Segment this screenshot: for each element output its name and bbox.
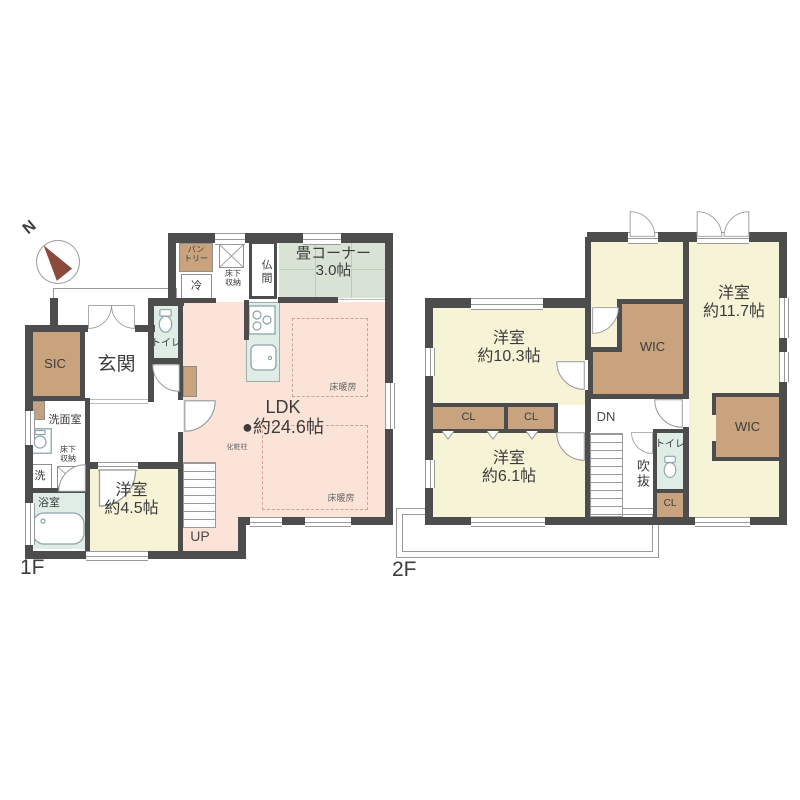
window: [25, 411, 35, 445]
toilet-1f-label: トイレ: [151, 338, 179, 349]
bedroom-61-size: 約6.1帖: [433, 468, 585, 486]
bedroom-117-door-arc: [654, 399, 683, 428]
genkan-label: 玄関: [85, 354, 148, 375]
wall: [433, 403, 557, 407]
wall: [617, 299, 685, 304]
room-wic-left-ext: [593, 352, 622, 394]
stove-icon: [248, 305, 276, 335]
wall: [712, 393, 782, 397]
bedroom-45-name: 洋室: [85, 482, 178, 500]
window-swing-arc: [723, 211, 750, 237]
window: [471, 298, 543, 310]
cl-a-label: CL: [433, 411, 504, 423]
cupboard-strip: [183, 366, 197, 397]
wall: [178, 432, 183, 559]
pillar-label: 化粧柱: [222, 444, 252, 452]
pantry-label: パン トリー: [179, 246, 213, 264]
window: [471, 517, 545, 527]
bedroom-61-name: 洋室: [433, 450, 585, 468]
wall: [712, 393, 716, 415]
kitchen-sink-icon: [250, 344, 277, 371]
washroom-label: 洗面室: [43, 414, 87, 426]
underfloor-storage-label: 床下 収納: [217, 270, 249, 288]
bedroom-61-label: 洋室 約6.1帖: [433, 450, 585, 486]
genkan-step-line: [85, 399, 148, 400]
wall: [278, 297, 338, 303]
void-label: 吹抜: [627, 448, 649, 500]
wall: [585, 237, 591, 303]
staircase-2f: [590, 433, 623, 517]
window: [215, 233, 245, 245]
stairs-down-label: DN: [588, 410, 624, 425]
window: [305, 517, 351, 527]
wall: [585, 429, 590, 523]
floor-heating-label-1: 床暖房: [322, 382, 364, 392]
wall: [168, 233, 176, 306]
window: [86, 551, 148, 561]
bathtub-icon: [32, 512, 85, 545]
tatami-corner-label: 畳コーナー 3.0帖: [279, 246, 388, 280]
pillar-dot-icon: ●: [242, 417, 253, 437]
wic-left-label: WIC: [622, 340, 683, 355]
room-bedroom-117: [689, 242, 779, 517]
floor-heating-label-2: 床暖房: [320, 493, 362, 503]
window: [779, 298, 789, 338]
bedroom-103-label: 洋室 約10.3帖: [433, 330, 585, 366]
tatami-name: 畳コーナー: [279, 246, 388, 263]
pantry-label-line2: トリー: [179, 255, 213, 264]
north-label: N: [15, 213, 45, 242]
ldk-size-line: ●約24.6帖: [183, 417, 383, 437]
toilet-icon: [158, 308, 173, 334]
toilet-2f-label: トイレ: [654, 439, 686, 450]
window-swing-arc: [696, 211, 723, 237]
wall: [712, 457, 782, 461]
window: [250, 517, 282, 527]
wall: [176, 298, 216, 303]
cl-b-label: CL: [508, 411, 554, 423]
entrance-door-arc: [88, 302, 112, 332]
bedroom-45-size: 約4.5帖: [85, 500, 178, 518]
toilet-icon: [663, 455, 677, 479]
storage-left-line2: 収納: [51, 455, 85, 464]
floor2-title: 2F: [392, 558, 434, 582]
genkan-step-line: [85, 403, 148, 404]
bedroom-103-size: 約10.3帖: [433, 348, 585, 366]
compass-circle: [36, 240, 80, 284]
wall: [50, 298, 58, 332]
wall: [653, 489, 685, 493]
bedroom-117-name: 洋室: [689, 285, 779, 303]
bath-label: 浴室: [31, 497, 67, 509]
wall: [425, 298, 433, 525]
bedroom-117-label: 洋室 約11.7帖: [689, 285, 779, 321]
window-swing-arc: [629, 211, 656, 237]
window: [695, 517, 750, 527]
butsuma-label: 仏間: [254, 252, 272, 292]
underfloor-storage-left-label: 床下 収納: [51, 446, 85, 464]
stairs-up-label: UP: [184, 529, 216, 545]
wic-door-arc: [592, 306, 619, 335]
window: [303, 233, 341, 245]
floor-plan-canvas: N: [0, 0, 800, 800]
fridge-label: 冷: [181, 280, 212, 292]
wall: [554, 403, 558, 433]
ldk-size: 約24.6帖: [253, 417, 324, 437]
ldk-label: LDK ●約24.6帖: [183, 397, 383, 437]
wall: [712, 441, 716, 461]
bedroom-103-name: 洋室: [433, 330, 585, 348]
bifold-mark: [442, 431, 454, 440]
bath-door-arc: [58, 464, 86, 492]
compass-needle-icon: [37, 241, 79, 283]
tatami-size: 3.0帖: [279, 263, 388, 280]
ldk-name: LDK: [183, 397, 383, 417]
window: [779, 352, 789, 382]
wall: [588, 347, 593, 399]
hall-2f-top: [591, 242, 683, 304]
bedroom-117-size: 約11.7帖: [689, 303, 779, 321]
laundry-label: 洗: [28, 470, 52, 482]
wall: [653, 429, 685, 433]
underfloor-storage-icon: [219, 244, 244, 268]
entrance-door-arc: [111, 302, 135, 332]
wall: [244, 300, 249, 340]
window: [385, 383, 395, 429]
wall: [25, 396, 85, 401]
staircase-1f: [183, 462, 216, 528]
room-opening-line: [336, 299, 388, 300]
wic-right-label: WIC: [716, 420, 779, 435]
toilet-door-arc: [152, 362, 180, 394]
cl-c-label: CL: [657, 498, 683, 509]
wall: [168, 233, 393, 243]
bedroom-45-label: 洋室 約4.5帖: [85, 482, 178, 518]
floor1-title: 1F: [20, 556, 60, 580]
sic-label: SIC: [30, 357, 80, 372]
bifold-mark: [487, 431, 499, 440]
bifold-mark: [526, 431, 538, 440]
storage-label-line2: 収納: [217, 279, 249, 288]
